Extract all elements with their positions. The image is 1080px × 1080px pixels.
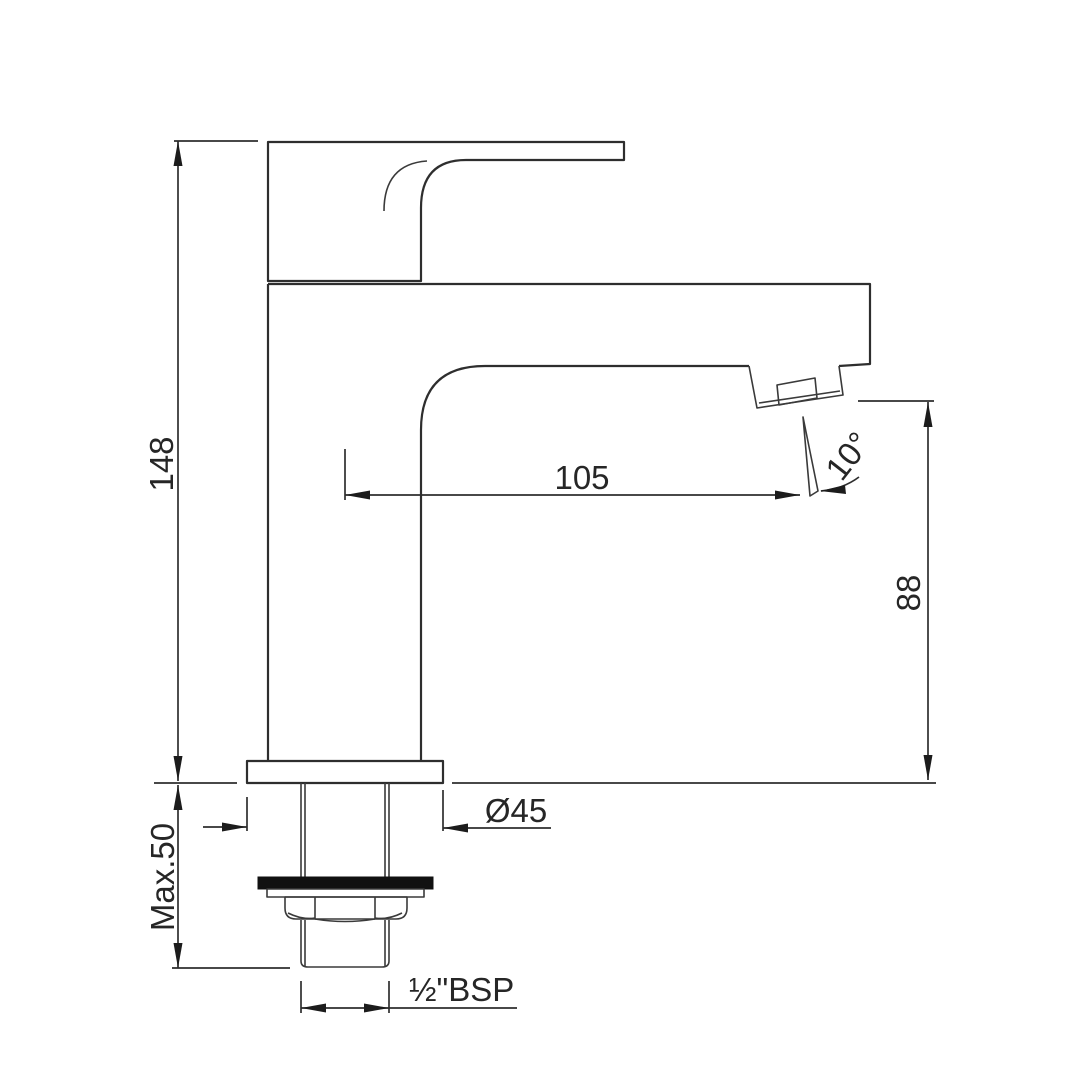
dimension-max-deck-thickness: Max.50 (144, 783, 290, 968)
arrowhead-left (345, 491, 370, 500)
dim-max-deck-label: Max.50 (144, 823, 181, 931)
arrowhead-up (924, 402, 933, 427)
dimension-spout-reach: 105 (345, 449, 800, 500)
dim-inlet-thread-label: ½"BSP (409, 971, 514, 1008)
dim-overall-height-label: 148 (143, 436, 180, 491)
dimension-spout-angle: 10° (818, 425, 878, 487)
arrowhead-down (174, 943, 183, 968)
flow-direction-needle (803, 417, 818, 496)
washer-flange (267, 889, 424, 897)
arrowhead-down (924, 755, 933, 780)
faucet-dimension-drawing: 148 Max.50 105 10° (0, 0, 1080, 1080)
technical-drawing-canvas: 148 Max.50 105 10° (0, 0, 1080, 1080)
spout-underside (421, 366, 749, 761)
thread-tail (301, 920, 389, 967)
arrowhead-left (301, 1004, 326, 1013)
faucet-body-top (268, 284, 870, 366)
dimension-inlet-thread: ½"BSP (301, 971, 517, 1013)
base-plate (247, 761, 443, 783)
rubber-washer (258, 877, 433, 889)
arrowhead-up (174, 785, 183, 810)
arrowhead-right (222, 823, 247, 832)
dim-spout-reach-label: 105 (554, 459, 609, 496)
mounting-nut-facets (288, 897, 402, 922)
arrowhead-right (364, 1004, 389, 1013)
dim-spout-angle-label: 10° (818, 425, 878, 487)
dimension-overall-height: 148 (143, 141, 258, 781)
arrowhead-down (174, 756, 183, 781)
faucet-handle (268, 142, 624, 281)
dimension-base-diameter: Ø45 (203, 790, 551, 833)
faucet-outline (247, 142, 870, 967)
arrowhead-up (174, 141, 183, 166)
angle-arc-arrowhead (820, 485, 846, 494)
arrowhead-right (775, 491, 800, 500)
shank-thread-lines (301, 783, 389, 877)
dim-base-diameter-label: Ø45 (485, 792, 547, 829)
arrowhead-left (443, 824, 468, 833)
aerator-outlet (777, 378, 817, 405)
dim-spout-height-label: 88 (890, 575, 927, 612)
mounting-nut (285, 897, 407, 919)
